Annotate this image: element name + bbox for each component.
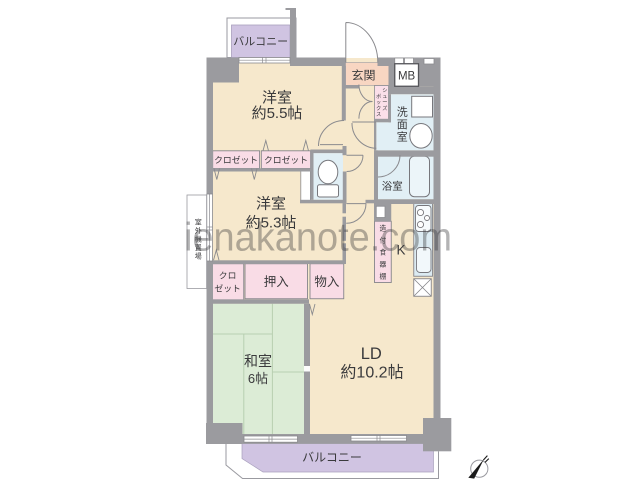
svg-text:押入: 押入	[264, 275, 290, 289]
svg-text:洋室: 洋室	[256, 195, 286, 212]
svg-text:バルコニー: バルコニー	[302, 451, 362, 465]
svg-text:浴室: 浴室	[382, 180, 403, 193]
svg-text:ゼット: ゼット	[214, 283, 240, 294]
svg-text:MB: MB	[398, 70, 416, 82]
svg-text:器: 器	[380, 261, 387, 269]
svg-text:ズ: ズ	[382, 104, 387, 112]
svg-text:洗: 洗	[397, 106, 408, 119]
svg-text:LD: LD	[361, 345, 382, 363]
svg-text:物入: 物入	[314, 275, 340, 289]
svg-text:洋室: 洋室	[262, 89, 292, 106]
svg-text:和室: 和室	[244, 353, 272, 369]
svg-text:約5.5帖: 約5.5帖	[252, 105, 303, 122]
svg-text:室: 室	[397, 130, 408, 144]
svg-text:ボ: ボ	[376, 92, 381, 100]
svg-text:クロ: クロ	[219, 271, 237, 281]
svg-text:6帖: 6帖	[248, 371, 268, 386]
svg-text:クロゼット: クロゼット	[264, 154, 308, 165]
svg-text:クロゼット: クロゼット	[214, 154, 258, 165]
svg-text:面: 面	[397, 119, 408, 131]
svg-text:ス: ス	[376, 111, 381, 118]
svg-text:棚: 棚	[380, 272, 387, 281]
svg-text:ienakanote.com: ienakanote.com	[184, 216, 452, 260]
svg-text:バルコニー: バルコニー	[233, 35, 288, 48]
svg-text:ク: ク	[376, 105, 381, 112]
svg-text:玄関: 玄関	[351, 67, 375, 82]
svg-text:約10.2帖: 約10.2帖	[340, 364, 403, 382]
